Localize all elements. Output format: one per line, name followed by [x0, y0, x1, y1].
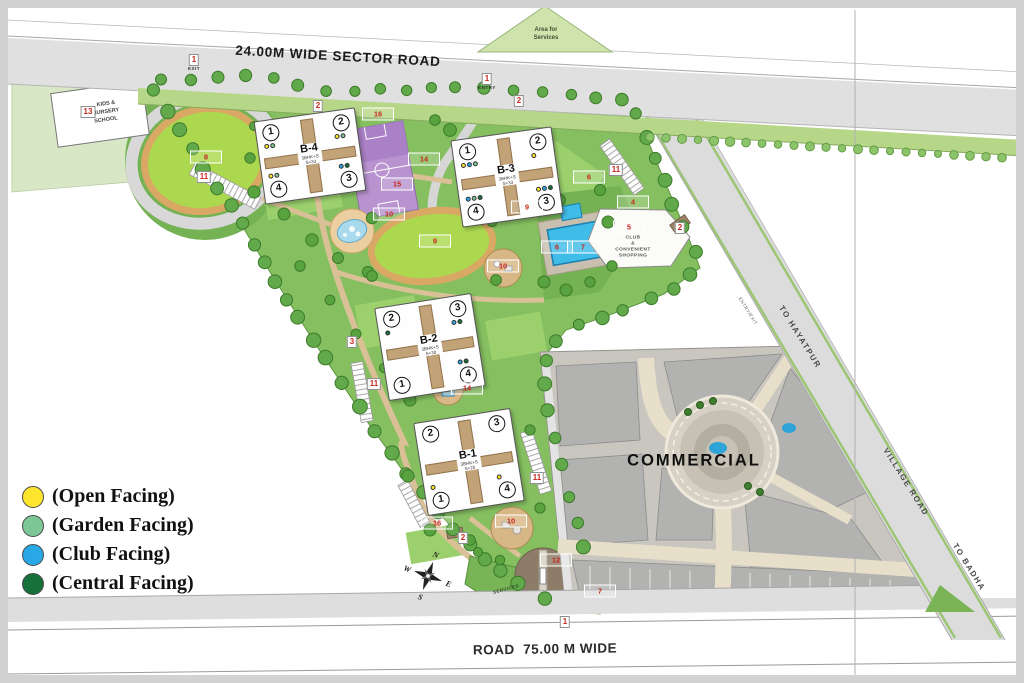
map-marker-5: 5	[613, 221, 645, 234]
legend-item-club-facing: (Club Facing)	[22, 540, 194, 569]
map-marker-1: 1	[560, 616, 570, 628]
map-marker-1: 1EXIT	[189, 54, 199, 66]
facing-dots	[385, 330, 391, 336]
map-marker-2: 2	[458, 532, 468, 544]
legend-label: (Garden Facing)	[52, 514, 194, 537]
facing-dot-club	[542, 186, 548, 192]
map-marker-4: 4	[617, 196, 649, 209]
facing-dot-club	[467, 162, 473, 168]
map-marker-13: 13	[81, 106, 96, 118]
services-triangle-label: Area for	[534, 27, 557, 33]
bottom-road-label: ROAD 75.00 M WIDE	[473, 640, 617, 657]
map-marker-11: 11	[530, 472, 544, 484]
tower-b-1-4: 4	[498, 480, 517, 499]
legend-item-central-facing: (Central Facing)	[22, 569, 194, 598]
legend-swatch-club	[22, 544, 44, 566]
map-marker-9: 9	[511, 201, 543, 214]
facing-dot-open	[430, 485, 436, 491]
facing-dot-garden	[473, 161, 479, 167]
map-marker-2: 2	[313, 100, 323, 112]
building-b-3: 1243B-33BHK+SS+33	[450, 126, 563, 227]
map-marker-11: 11	[609, 164, 623, 176]
club-label: SHOPPING	[619, 254, 648, 259]
services-triangle-label: Services	[534, 35, 559, 41]
club-label: CONVENIENT	[615, 248, 650, 253]
facing-dots	[465, 195, 483, 202]
facing-dots	[430, 485, 436, 491]
facing-dot-garden	[471, 195, 477, 201]
map-marker-14: 14	[451, 382, 483, 395]
map-marker-2: 2	[675, 222, 685, 234]
building-b-1: 2314B-13BHK+SS+20	[413, 408, 524, 516]
map-marker-10: 10	[373, 208, 405, 221]
site-plan-image: N E S W 1243B-43BHK+SS+331243B-33BHK+SS+…	[0, 0, 1024, 683]
map-marker-14: 14	[408, 153, 440, 166]
legend-label: (Club Facing)	[52, 543, 170, 566]
map-marker-9: 9	[419, 235, 451, 248]
facing-dot-open	[536, 186, 542, 192]
tower-b-3-1: 1	[458, 142, 477, 161]
facing-dot-club	[465, 196, 471, 202]
legend-item-garden-facing: (Garden Facing)	[22, 511, 194, 540]
facing-dot-central	[385, 330, 391, 336]
facing-dot-central	[548, 185, 554, 191]
tower-b-1-2: 2	[421, 424, 440, 443]
facing-dot-club	[457, 359, 463, 365]
tower-b-1-1: 1	[431, 491, 450, 510]
tower-b-1-3: 3	[487, 414, 506, 433]
facing-dot-central	[457, 319, 463, 325]
facing-dot-open	[496, 474, 502, 480]
facing-dot-central	[477, 195, 483, 201]
map-marker-16: 16	[421, 517, 453, 530]
facing-dots	[451, 319, 463, 326]
map-marker-16: 16	[362, 108, 394, 121]
tower-b-2-1: 1	[392, 376, 411, 395]
tower-b-3-2: 2	[528, 132, 547, 151]
commercial-label: COMMERCIAL	[627, 452, 761, 471]
legend-swatch-central	[22, 573, 44, 595]
tower-b-3-4: 4	[466, 203, 485, 222]
tower-b-2-2: 2	[382, 309, 401, 328]
tower-b-4-2: 2	[332, 113, 351, 132]
tower-b-4-4: 4	[269, 180, 288, 199]
legend-swatch-garden	[22, 515, 44, 537]
facing-legend: (Open Facing)(Garden Facing)(Club Facing…	[22, 482, 194, 598]
club-label: CLUB	[626, 236, 641, 241]
tower-b-2-3: 3	[448, 299, 467, 318]
map-marker-3: 3	[347, 336, 357, 348]
map-marker-10: 10	[487, 260, 519, 273]
map-marker-2: 2	[514, 95, 524, 107]
building-b-4: 1243B-43BHK+SS+33	[254, 107, 367, 204]
map-marker-7: 7	[584, 585, 616, 598]
play-area	[491, 507, 533, 549]
map-marker-8: 8	[190, 151, 222, 164]
map-marker-11: 11	[197, 171, 211, 183]
map-marker-10: 10	[495, 515, 527, 528]
facing-dot-open	[461, 163, 467, 169]
facing-dots	[496, 474, 502, 480]
gate-caption: ENTRY	[478, 85, 496, 90]
map-marker-11: 11	[367, 378, 381, 390]
map-marker-6: 6	[573, 171, 605, 184]
tower-b-4-1: 1	[261, 123, 280, 142]
facing-dot-central	[463, 358, 469, 364]
facing-dots	[536, 185, 554, 192]
map-marker-15: 15	[381, 178, 413, 191]
tower-b-4-3: 3	[340, 170, 359, 189]
map-marker-7: 7	[567, 241, 599, 254]
map-marker-12: 12	[540, 554, 572, 567]
legend-label: (Open Facing)	[52, 485, 175, 508]
facing-dot-open	[531, 153, 537, 159]
map-marker-1: 1ENTRY	[482, 73, 492, 85]
legend-swatch-open	[22, 486, 44, 508]
facing-dots	[531, 153, 537, 159]
legend-label: (Central Facing)	[52, 572, 194, 595]
facing-dots	[457, 358, 469, 365]
facing-dot-club	[451, 320, 457, 326]
gate-caption: EXIT	[188, 66, 200, 71]
club-label: &	[631, 242, 635, 247]
legend-item-open-facing: (Open Facing)	[22, 482, 194, 511]
facing-dots	[461, 161, 479, 168]
